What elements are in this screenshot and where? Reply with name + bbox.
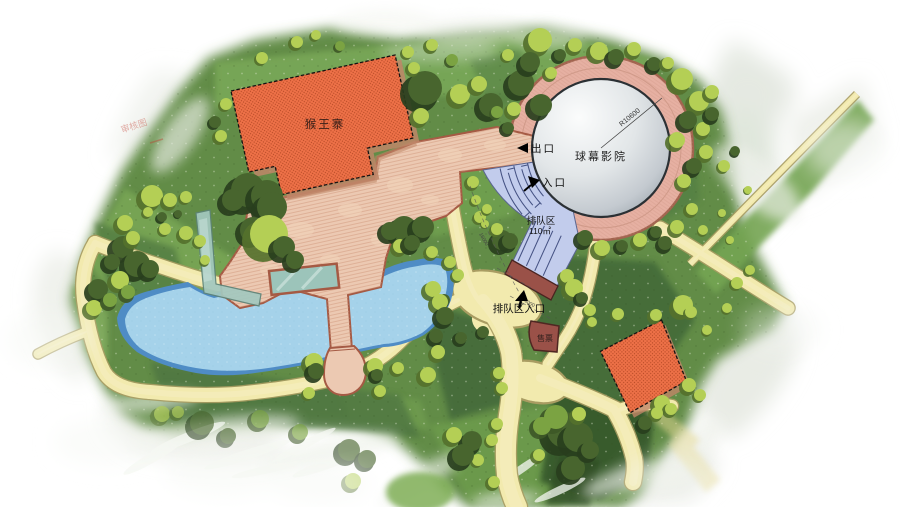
svg-text:球幕影院: 球幕影院 <box>575 149 627 163</box>
svg-text:出口: 出口 <box>531 142 556 155</box>
svg-text:猴王寨: 猴王寨 <box>305 117 346 131</box>
svg-text:110㎡: 110㎡ <box>529 226 552 236</box>
svg-text:排队区入口: 排队区入口 <box>493 302 546 315</box>
svg-text:售票: 售票 <box>537 333 553 343</box>
svg-text:入口: 入口 <box>542 177 567 189</box>
